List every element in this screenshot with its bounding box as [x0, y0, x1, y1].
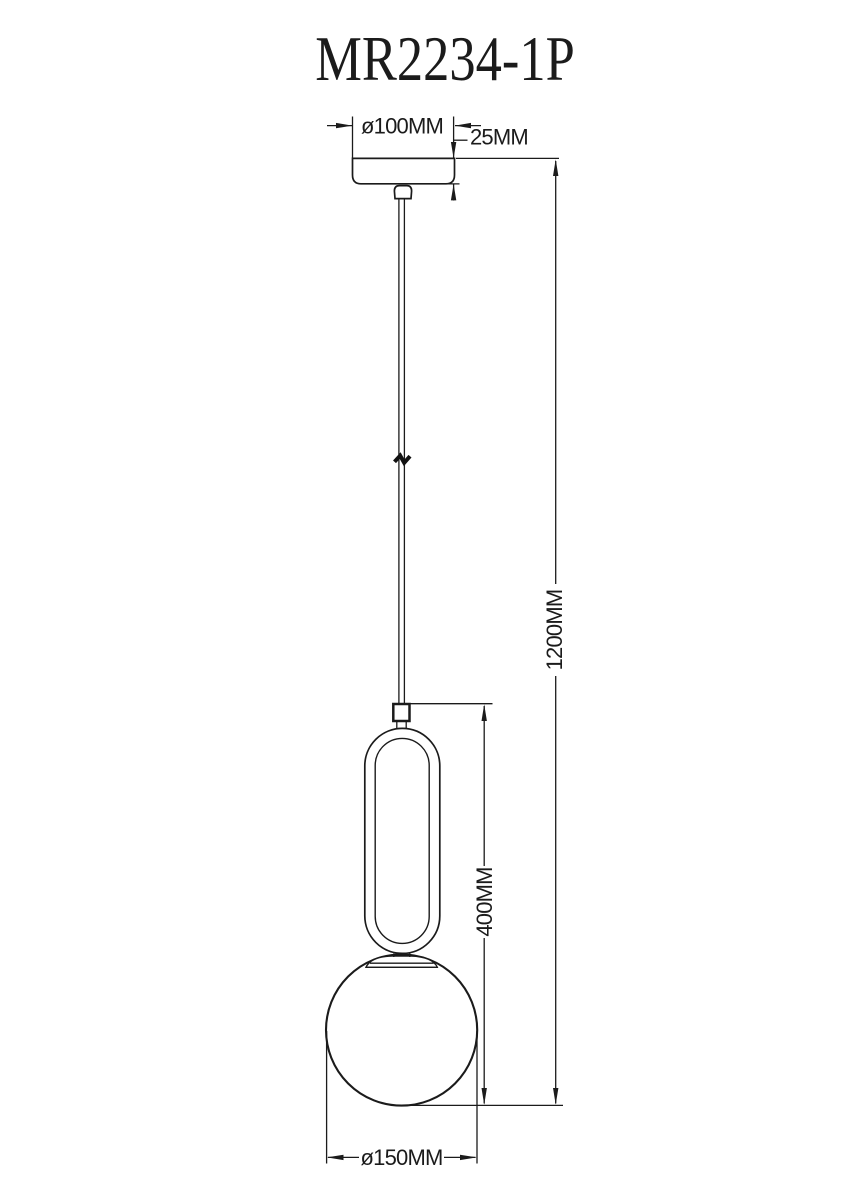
cable-break-symbol: [395, 456, 411, 463]
dim-label-overall-height: 1200MM: [542, 590, 567, 671]
dim-label-canopy-height: 25MM: [470, 125, 528, 150]
pendant-lamp-dimension-drawing: MR2234-1P: [0, 0, 848, 1200]
arrow-right-pointing: [336, 123, 352, 128]
arrow-down-pointing: [451, 142, 456, 158]
ceiling-canopy: [353, 158, 455, 198]
dim-label-canopy-diameter: ø100MM: [361, 114, 443, 139]
dim-label-body-height: 400MM: [472, 867, 497, 936]
arrow-up-pointing: [482, 704, 487, 721]
dim-canopy-diameter: ø100MM: [327, 114, 481, 159]
globe-sphere: [326, 954, 477, 1105]
arrow-left-pointing: [455, 123, 471, 128]
globe-shade: [326, 953, 477, 1105]
arrow-right-pointing: [460, 1155, 477, 1160]
cord-grip: [394, 186, 411, 199]
suspension-cable: [395, 199, 411, 704]
ring-frame: [365, 704, 440, 953]
dim-label-globe-diameter: ø150MM: [361, 1145, 443, 1170]
arrow-down-pointing: [553, 1088, 558, 1105]
arrow-left-pointing: [327, 1155, 344, 1160]
globe-cap-dome: [366, 956, 437, 967]
arrow-up-pointing: [553, 159, 558, 176]
drawing-title: MR2234-1P: [315, 23, 575, 94]
technical-drawing-page: MR2234-1P: [0, 0, 848, 1200]
ring-inner-outline: [375, 738, 429, 943]
arrow-up-pointing: [451, 184, 456, 200]
cable-connector-block: [393, 704, 409, 721]
arrow-down-pointing: [482, 1088, 487, 1105]
canopy-outline: [353, 158, 455, 183]
